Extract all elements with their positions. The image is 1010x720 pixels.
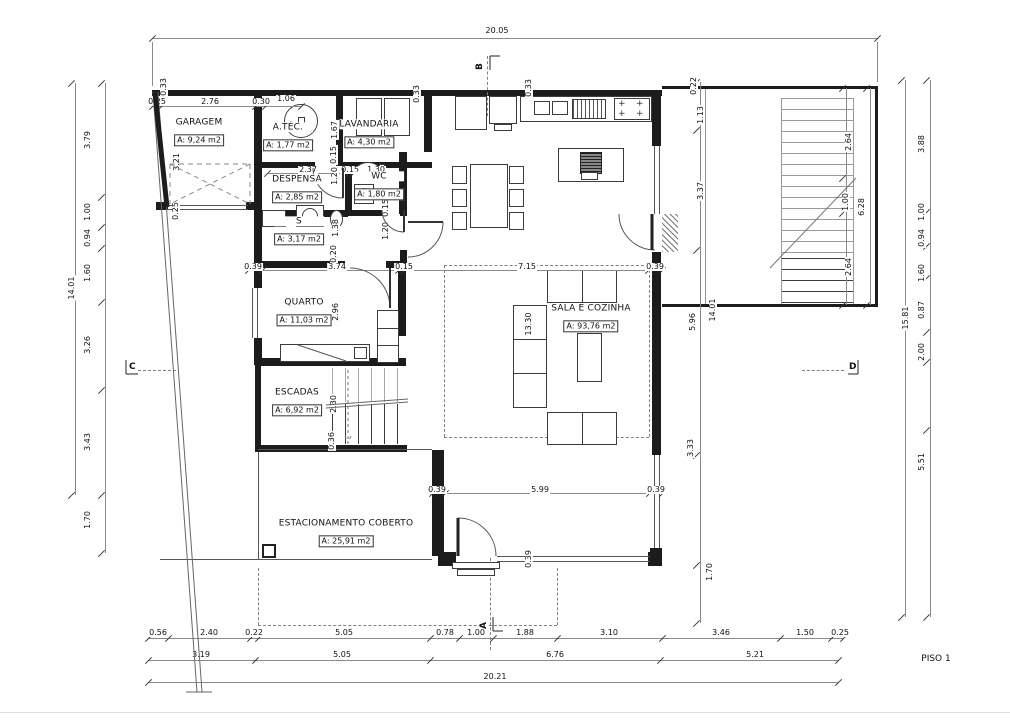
dim-label: 13.30 bbox=[525, 312, 533, 337]
dim-label: 5.99 bbox=[530, 486, 550, 494]
dim-label: 1.70 bbox=[706, 562, 714, 582]
parking-bottom-edge bbox=[160, 559, 432, 560]
dim-label: 0.33 bbox=[160, 77, 168, 97]
section-b-line bbox=[487, 56, 488, 116]
right-window2-line2 bbox=[659, 455, 660, 548]
dim-label: 0.30 bbox=[251, 98, 271, 106]
island-grill-tray bbox=[581, 172, 598, 180]
dim-label: 1.00 bbox=[918, 202, 926, 222]
room-name: A.TÉC. bbox=[263, 122, 313, 132]
entry-step-2 bbox=[457, 569, 495, 576]
dim-label: 3.46 bbox=[711, 629, 731, 637]
dim-label: 7.15 bbox=[517, 263, 537, 271]
section-marker-c: C bbox=[129, 363, 136, 372]
burner: + bbox=[636, 100, 644, 109]
dim-label: 1.60 bbox=[84, 263, 92, 283]
page-title: PISO 1 bbox=[921, 654, 950, 664]
dim-tick bbox=[98, 299, 105, 306]
entry-door-arc bbox=[458, 518, 496, 556]
dim-label: 3.74 bbox=[327, 263, 347, 271]
escadas-treads-lower bbox=[332, 404, 404, 444]
dim-line-topwall bbox=[152, 106, 301, 107]
sink-drainer bbox=[572, 99, 606, 119]
dim-label: 3.26 bbox=[84, 335, 92, 355]
dim-label: 0.15 bbox=[394, 263, 414, 271]
dim-tick bbox=[874, 35, 881, 42]
dim-label: 2.00 bbox=[918, 342, 926, 362]
dim-tick bbox=[98, 245, 105, 252]
wall-quarto-right bbox=[398, 268, 406, 336]
dim-tick bbox=[923, 77, 930, 84]
dim-label: 0.15 bbox=[330, 145, 338, 165]
dim-label: 3.43 bbox=[84, 432, 92, 452]
dim-label: 0.33 bbox=[525, 78, 533, 98]
wall-bottom-corner bbox=[648, 552, 662, 566]
dim-label: 2.96 bbox=[332, 302, 340, 322]
dim-tick bbox=[98, 80, 105, 87]
dim-label: 0.94 bbox=[84, 228, 92, 248]
quarto-window-line1 bbox=[252, 288, 253, 338]
right-window1-line2 bbox=[659, 146, 660, 214]
burner: + bbox=[618, 110, 626, 119]
dim-label: 0.20 bbox=[330, 244, 338, 264]
wall-right-upper bbox=[652, 96, 661, 146]
dim-label: 2.30 bbox=[330, 394, 338, 414]
dim-tick bbox=[923, 614, 930, 621]
wall-wc-bottom-a bbox=[352, 210, 382, 216]
dim-label: 5.96 bbox=[689, 312, 697, 332]
dim-ext-top-left bbox=[152, 42, 153, 86]
dim-tick bbox=[898, 77, 905, 84]
sink-basin-left bbox=[534, 101, 550, 115]
room-name: LAVANDARIA bbox=[339, 119, 398, 129]
room-name: DESPENSA bbox=[272, 174, 322, 184]
kitchen-cabinet-tab bbox=[494, 124, 512, 131]
property-line bbox=[153, 92, 212, 692]
chair bbox=[452, 166, 467, 184]
room-name: ESCADAS bbox=[272, 387, 322, 397]
dim-line-left-chain bbox=[105, 83, 106, 553]
dim-tick bbox=[835, 679, 842, 686]
room-area: A: 9,24 m2 bbox=[174, 135, 224, 147]
dim-label: 3.10 bbox=[599, 629, 619, 637]
annex-stair-rail-left bbox=[781, 98, 782, 304]
sala-upper-floor-dash-top bbox=[444, 265, 649, 266]
dim-line-bottom3 bbox=[148, 682, 838, 683]
dim-ext-top-right bbox=[877, 42, 878, 82]
quarto-window-line2 bbox=[257, 288, 258, 338]
room-name: S bbox=[274, 216, 324, 226]
room-area: A: 11,03 m2 bbox=[277, 315, 332, 327]
dim-label: 15.81 bbox=[902, 306, 910, 331]
wardrobe bbox=[377, 310, 399, 363]
dim-tick bbox=[923, 427, 930, 434]
chair bbox=[452, 212, 467, 230]
room-name: ESTACIONAMENTO COBERTO bbox=[279, 518, 414, 528]
dim-label: 5.21 bbox=[745, 651, 765, 659]
section-marker-a: A bbox=[480, 622, 489, 629]
bed-pillow bbox=[354, 347, 367, 359]
dim-label: 1.13 bbox=[697, 105, 705, 125]
dim-tick bbox=[98, 194, 105, 201]
sofa-cushion-split bbox=[514, 339, 546, 340]
room-area: A: 1,77 m2 bbox=[263, 140, 313, 152]
dim-line-mid bbox=[245, 270, 665, 271]
dim-label: 5.05 bbox=[332, 651, 352, 659]
dim-label: 0.22 bbox=[690, 76, 698, 96]
dim-label: 3.79 bbox=[84, 130, 92, 150]
dim-label: 0.36 bbox=[328, 431, 336, 451]
room-name: GARAGEM bbox=[174, 117, 224, 127]
dim-label: 0.33 bbox=[413, 84, 421, 104]
dim-tick bbox=[98, 387, 105, 394]
dim-label: 5.51 bbox=[918, 452, 926, 472]
sofa-cushion-split bbox=[582, 271, 583, 302]
dim-label: 3.19 bbox=[191, 651, 211, 659]
dim-label: 0.94 bbox=[918, 228, 926, 248]
dim-label: 3.21 bbox=[173, 152, 181, 172]
dim-label: 1.38 bbox=[332, 218, 340, 238]
room-label-garagem: GARAGEM A: 9,24 m2 bbox=[174, 117, 224, 146]
sink-basin-right bbox=[552, 101, 568, 115]
dim-tick bbox=[68, 80, 75, 87]
dim-label: 1.60 bbox=[918, 263, 926, 283]
dim-line-stair-overall bbox=[870, 88, 871, 305]
dim-label: 6.76 bbox=[545, 651, 565, 659]
overhang-dash-bottom bbox=[258, 625, 557, 626]
dim-tick bbox=[98, 550, 105, 557]
room-area: A: 1,80 m2 bbox=[354, 189, 404, 201]
dim-label: 2.76 bbox=[200, 98, 220, 106]
entry-step-1 bbox=[452, 562, 500, 569]
dim-tick bbox=[693, 247, 700, 254]
parking-top-edge bbox=[258, 449, 432, 450]
burner: + bbox=[618, 100, 626, 109]
dim-line-right-chain bbox=[930, 80, 931, 617]
annex-stair-rail-right bbox=[853, 98, 854, 304]
dim-label: 3.33 bbox=[687, 438, 695, 458]
section-marker-b: B bbox=[476, 63, 485, 70]
dim-label: 0.78 bbox=[435, 629, 455, 637]
sofa-cushion-split bbox=[514, 373, 546, 374]
dim-label: 1.20 bbox=[331, 166, 339, 186]
wardrobe-shelf bbox=[378, 345, 398, 346]
room-label-s: S A: 3,17 m2 bbox=[274, 216, 324, 245]
dim-label: 0.15 bbox=[382, 198, 390, 218]
room-area: A: 3,17 m2 bbox=[274, 234, 324, 246]
bottom-window-line1 bbox=[497, 556, 650, 557]
dim-label: 0.39 bbox=[645, 263, 665, 271]
island-grill bbox=[580, 152, 602, 174]
dim-label: 1.20 bbox=[382, 221, 390, 241]
dim-tick bbox=[693, 562, 700, 569]
dim-label: 2.40 bbox=[199, 629, 219, 637]
dim-label: 3.37 bbox=[697, 181, 705, 201]
sofa-cushion-split bbox=[582, 413, 583, 444]
room-area: A: 25,91 m2 bbox=[319, 536, 374, 548]
balcony-sill-hatch bbox=[662, 214, 678, 252]
room-label-escadas: ESCADAS A: 6,92 m2 bbox=[272, 387, 322, 416]
dim-line-bottom2 bbox=[148, 660, 838, 661]
dim-tick bbox=[693, 127, 700, 134]
floor-plan-sheet: + + + + bbox=[0, 0, 1010, 720]
dim-tick bbox=[68, 492, 75, 499]
dim-label: 20.21 bbox=[483, 673, 508, 681]
sheet-edge-line bbox=[0, 712, 1010, 713]
dim-line-top bbox=[152, 38, 878, 39]
dim-label: 1.06 bbox=[276, 95, 296, 103]
wall-cluster-left bbox=[254, 90, 262, 268]
chair bbox=[509, 189, 524, 207]
quarto-door-arc bbox=[350, 268, 390, 308]
section-marker-d: D bbox=[849, 363, 856, 372]
dim-tick bbox=[98, 492, 105, 499]
sofa-bottom bbox=[547, 412, 617, 445]
dim-label: 0.39 bbox=[646, 486, 666, 494]
room-label-sala: SALA E COZINHA A: 93,76 m2 bbox=[551, 303, 630, 332]
section-b-bracket bbox=[490, 56, 500, 70]
dining-table bbox=[470, 164, 508, 228]
dim-label: 0.56 bbox=[148, 629, 168, 637]
sala-upper-floor-dash-right bbox=[649, 265, 650, 437]
sofa-top bbox=[547, 270, 617, 303]
dim-line-bottom1 bbox=[148, 638, 843, 639]
dim-tick bbox=[835, 657, 842, 664]
dim-tick bbox=[898, 614, 905, 621]
dim-line-right-overall bbox=[905, 80, 906, 617]
coffee-table bbox=[577, 333, 602, 382]
dim-label: 1.00 bbox=[842, 192, 850, 212]
dim-tick bbox=[98, 224, 105, 231]
bottom-window-line2 bbox=[497, 561, 650, 562]
burner: + bbox=[636, 110, 644, 119]
dim-label: 0.25 bbox=[172, 201, 180, 221]
kitchen-cabinet bbox=[489, 96, 517, 124]
dim-label: 0.25 bbox=[830, 629, 850, 637]
room-label-atec: A.TÉC. A: 1,77 m2 bbox=[263, 122, 313, 151]
dim-label: 0.39 bbox=[525, 549, 533, 569]
room-area: A: 2,85 m2 bbox=[272, 192, 322, 204]
dim-label: 0.39 bbox=[243, 263, 263, 271]
dim-label: 14.01 bbox=[68, 276, 76, 301]
chair bbox=[452, 189, 467, 207]
garage-door-dash bbox=[170, 164, 250, 204]
dim-tick bbox=[923, 329, 930, 336]
room-name: SALA E COZINHA bbox=[551, 303, 630, 313]
room-area: A: 4,30 m2 bbox=[344, 137, 394, 149]
fridge bbox=[455, 96, 487, 130]
dim-label: 5.05 bbox=[334, 629, 354, 637]
dim-label: 14.01 bbox=[709, 298, 717, 323]
chair bbox=[509, 212, 524, 230]
room-name: WC bbox=[354, 171, 404, 181]
dim-label: 2.37 bbox=[298, 166, 318, 174]
dim-label: 0.87 bbox=[918, 300, 926, 320]
room-label-lavandaria: LAVANDARIA A: 4,30 m2 bbox=[339, 119, 398, 148]
dim-label: 0.25 bbox=[147, 98, 167, 106]
dim-label: 1.00 bbox=[466, 629, 486, 637]
dim-label: 20.05 bbox=[485, 27, 510, 35]
right-window1-line1 bbox=[654, 146, 655, 214]
dim-label: 1.00 bbox=[84, 202, 92, 222]
room-label-despensa: DESPENSA A: 2,85 m2 bbox=[272, 174, 322, 203]
section-c-line bbox=[138, 370, 176, 371]
wardrobe-shelf bbox=[378, 328, 398, 329]
dim-label: 1.67 bbox=[331, 120, 339, 140]
section-a-bracket bbox=[493, 617, 503, 631]
room-label-quarto: QUARTO A: 11,03 m2 bbox=[277, 297, 332, 326]
wall-annex-right bbox=[875, 86, 878, 307]
wall-annex-inner bbox=[705, 89, 706, 304]
dim-line-inright bbox=[700, 82, 701, 623]
dim-label: 3.88 bbox=[918, 134, 926, 154]
room-label-estacionamento: ESTACIONAMENTO COBERTO A: 25,91 m2 bbox=[279, 518, 414, 547]
overhang-dash-right bbox=[557, 568, 558, 625]
dim-label: 2.64 bbox=[845, 132, 853, 152]
section-d-line bbox=[802, 370, 844, 371]
chair bbox=[509, 166, 524, 184]
room-name: QUARTO bbox=[277, 297, 332, 307]
room-label-wc: WC A: 1,80 m2 bbox=[354, 171, 404, 200]
hall-sala-door-arc bbox=[408, 222, 443, 257]
overhang-dash-left bbox=[258, 568, 259, 625]
dim-label: 0.39 bbox=[427, 486, 447, 494]
dim-label: 1.50 bbox=[795, 629, 815, 637]
room-area: A: 93,76 m2 bbox=[564, 321, 619, 333]
wall-lav-right bbox=[424, 92, 432, 152]
wall-sala-sw bbox=[432, 450, 444, 556]
right-window2-line1 bbox=[654, 455, 655, 548]
dim-label: 0.22 bbox=[244, 629, 264, 637]
escadas-treads-upper bbox=[332, 368, 404, 402]
garage-slant-wall bbox=[155, 93, 167, 207]
wall-right-mid bbox=[652, 252, 661, 455]
dim-label: 6.28 bbox=[858, 197, 866, 217]
dim-label: 1.88 bbox=[515, 629, 535, 637]
parking-left-edge bbox=[258, 452, 259, 560]
dim-tick bbox=[693, 620, 700, 627]
wall-escadas-left bbox=[255, 365, 261, 452]
dim-label: 2.64 bbox=[845, 257, 853, 277]
balcony-door-arc bbox=[619, 214, 655, 250]
sala-upper-floor-dash-left bbox=[444, 265, 445, 437]
dim-label: 1.70 bbox=[84, 510, 92, 530]
room-area: A: 6,92 m2 bbox=[272, 405, 322, 417]
parking-column bbox=[262, 544, 276, 558]
